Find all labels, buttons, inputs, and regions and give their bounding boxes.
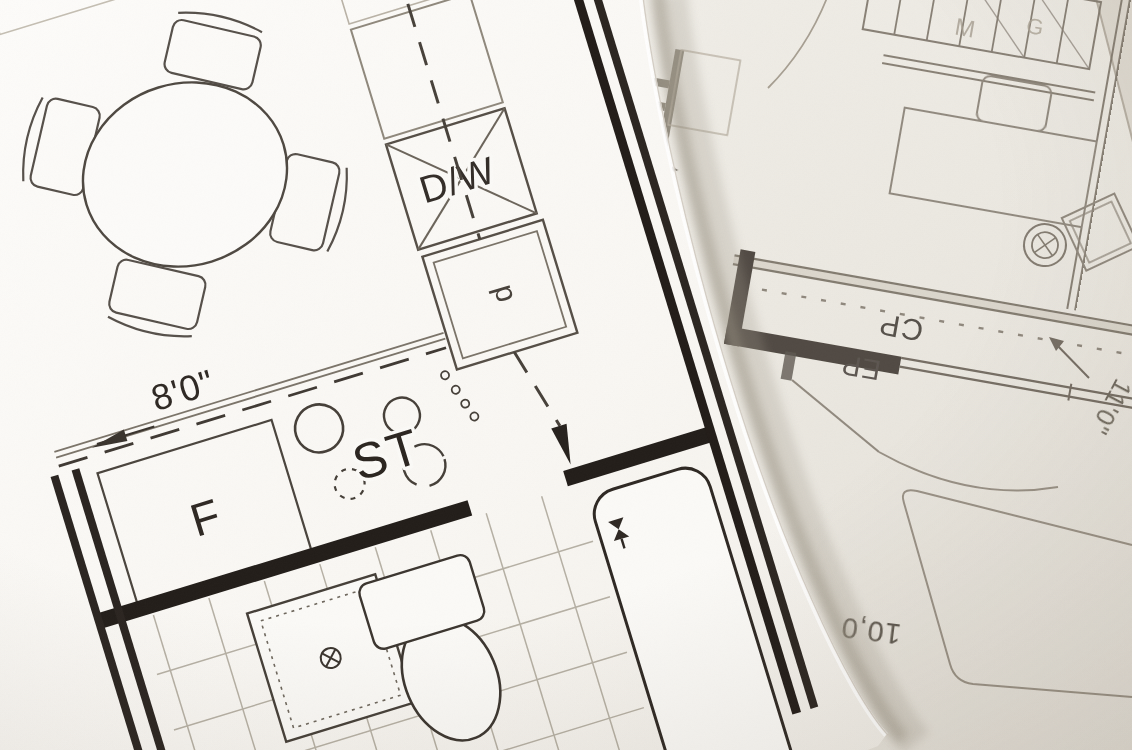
photo-vignette <box>0 0 1132 750</box>
blueprint-scene: CP EP d 0,9 <box>0 0 1132 750</box>
blueprint-photo: CP EP d 0,9 <box>0 0 1132 750</box>
